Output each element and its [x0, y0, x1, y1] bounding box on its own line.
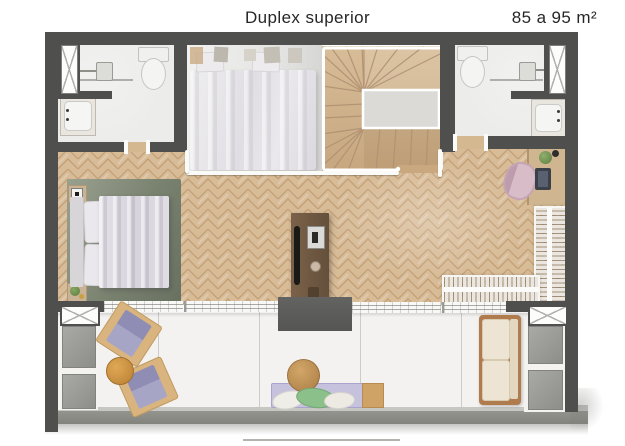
wall-right	[565, 32, 578, 412]
planter-x-icon	[528, 305, 568, 326]
tv-icon	[294, 226, 300, 285]
shower-icon	[519, 62, 536, 81]
washbasin-icon	[535, 104, 562, 132]
floor-plan: Duplex superior 85 a 95 m²	[0, 0, 625, 446]
area-range-label: 85 a 95 m²	[477, 8, 597, 28]
master-bed-duvet	[99, 196, 169, 288]
nook-bed-duvet	[190, 70, 316, 170]
stair-rail	[438, 149, 442, 177]
wall-frame	[264, 47, 281, 64]
balcony-slab-band	[45, 411, 588, 424]
faucet-dot	[66, 109, 69, 112]
sliding-door-glass	[444, 302, 506, 313]
toilet-icon	[460, 56, 485, 88]
washbasin-icon	[64, 101, 92, 131]
door-jamb	[484, 134, 488, 151]
door-jamb	[453, 134, 457, 151]
door-jamb	[146, 140, 150, 154]
side-table	[106, 357, 134, 385]
mezzanine-rail	[185, 150, 189, 173]
wall-frame	[244, 49, 256, 61]
wall-bath2-bottom	[488, 136, 565, 149]
window-x-icon	[61, 45, 78, 94]
decor-bowl	[310, 261, 321, 272]
door-opening-bath1	[128, 142, 146, 152]
decor-dot	[79, 294, 84, 299]
stair-landing	[363, 90, 439, 128]
planter	[528, 326, 563, 364]
wall-shelf	[190, 47, 203, 64]
bench-wood-end	[362, 383, 384, 408]
slab-shadow	[45, 424, 588, 435]
wall-top	[45, 32, 578, 45]
wall-bath1-right	[174, 45, 187, 152]
wall-frame	[288, 48, 302, 63]
wall-bath1-bottom	[58, 142, 126, 152]
staircase	[322, 46, 443, 173]
page-title: Duplex superior	[245, 8, 370, 28]
wall-left	[45, 32, 58, 432]
faucet-dot	[557, 119, 560, 122]
dimension-line	[243, 439, 400, 441]
planter	[528, 370, 563, 410]
sofa	[479, 315, 521, 405]
door-jamb	[124, 140, 128, 154]
window-x-icon	[549, 45, 566, 94]
planter-x-icon	[60, 305, 100, 326]
bed-headboard	[70, 197, 84, 287]
vase-icon	[552, 150, 559, 157]
faucet-dot	[66, 118, 69, 121]
shower-icon	[96, 62, 113, 81]
planter	[62, 326, 96, 368]
desk-plant-icon	[539, 151, 552, 164]
door-opening-bath2	[457, 136, 484, 149]
sliding-door-glass	[186, 301, 279, 312]
faucet-dot	[557, 110, 560, 113]
sliding-door-glass	[352, 302, 441, 313]
laptop-icon	[535, 168, 551, 190]
sunlight-overlay	[330, 160, 530, 280]
mezzanine-rail	[186, 171, 399, 175]
fireplace-icon	[307, 226, 325, 249]
wall-frame	[214, 47, 229, 63]
toilet-icon	[141, 58, 166, 90]
wall-bath1-bottom	[148, 142, 174, 152]
void-block	[278, 297, 352, 331]
planter	[62, 374, 96, 409]
